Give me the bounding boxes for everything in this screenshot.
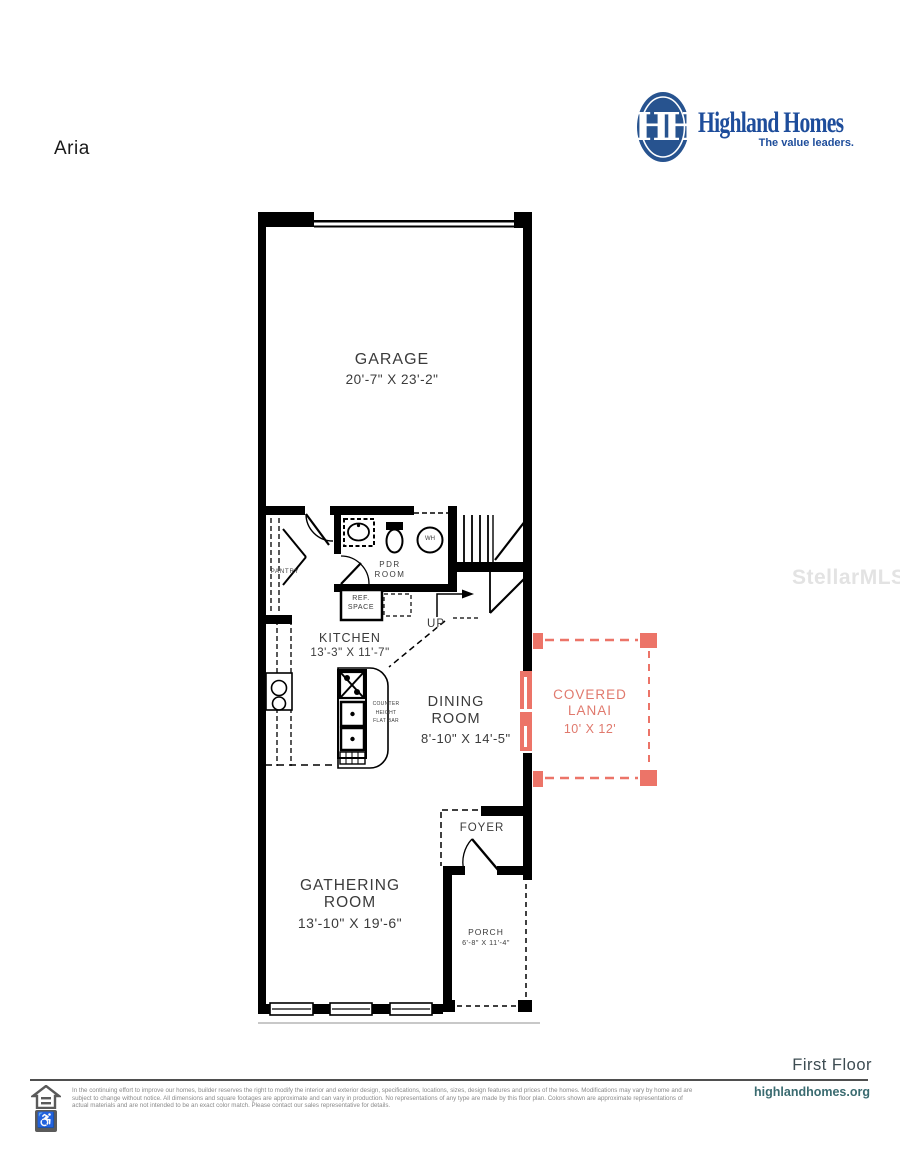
- gathering-room-label: GATHERING ROOM 13'-10" X 19'-6": [290, 877, 410, 931]
- equal-housing-icon: [31, 1085, 61, 1109]
- floor-label: First Floor: [792, 1056, 872, 1075]
- covered-lanai-label: COVERED LANAI 10' X 12': [548, 687, 632, 736]
- water-heater-label: WH: [425, 536, 435, 543]
- stairs-up-label: UP: [427, 618, 445, 631]
- floor-plan-page: Aria HH Highland Homes The value leaders…: [0, 0, 900, 1164]
- flat-bar-label: COUNTER HEIGHT FLAT BAR: [373, 700, 400, 726]
- floor-plan-drawing: [0, 0, 900, 1164]
- website-link[interactable]: highlandhomes.org: [754, 1085, 870, 1099]
- water-heater: [414, 513, 448, 553]
- kitchen-label: KITCHEN 13'-3" X 11'-7": [310, 631, 389, 661]
- dining-room-label: DINING ROOM 8'-10" X 14'-5": [421, 694, 491, 747]
- powder-room-label: PDR ROOM: [371, 560, 409, 579]
- ref-space-label: REF. SPACE: [346, 594, 376, 612]
- pantry-label: PANTRY: [271, 569, 300, 576]
- kitchen-sink-icon: [266, 673, 292, 710]
- kitchen-counter: [266, 620, 292, 766]
- toilet-bowl-icon: [387, 530, 403, 553]
- pdr-door-leaf: [341, 563, 361, 584]
- accessibility-icon: ♿: [35, 1110, 57, 1132]
- stairs-up-arrow: [437, 594, 462, 617]
- legal-disclaimer: In the continuing effort to improve our …: [72, 1087, 700, 1110]
- porch-label: PORCH 6'-8" X 11'-4": [462, 928, 510, 947]
- garage-label: GARAGE 20'-7" X 23'-2": [346, 351, 439, 388]
- pantry-shelving: [271, 518, 306, 614]
- foyer-label: FOYER: [460, 822, 505, 835]
- garage-door-swing: [306, 514, 333, 545]
- front-door-swing: [463, 839, 499, 871]
- footer-divider: [30, 1079, 868, 1081]
